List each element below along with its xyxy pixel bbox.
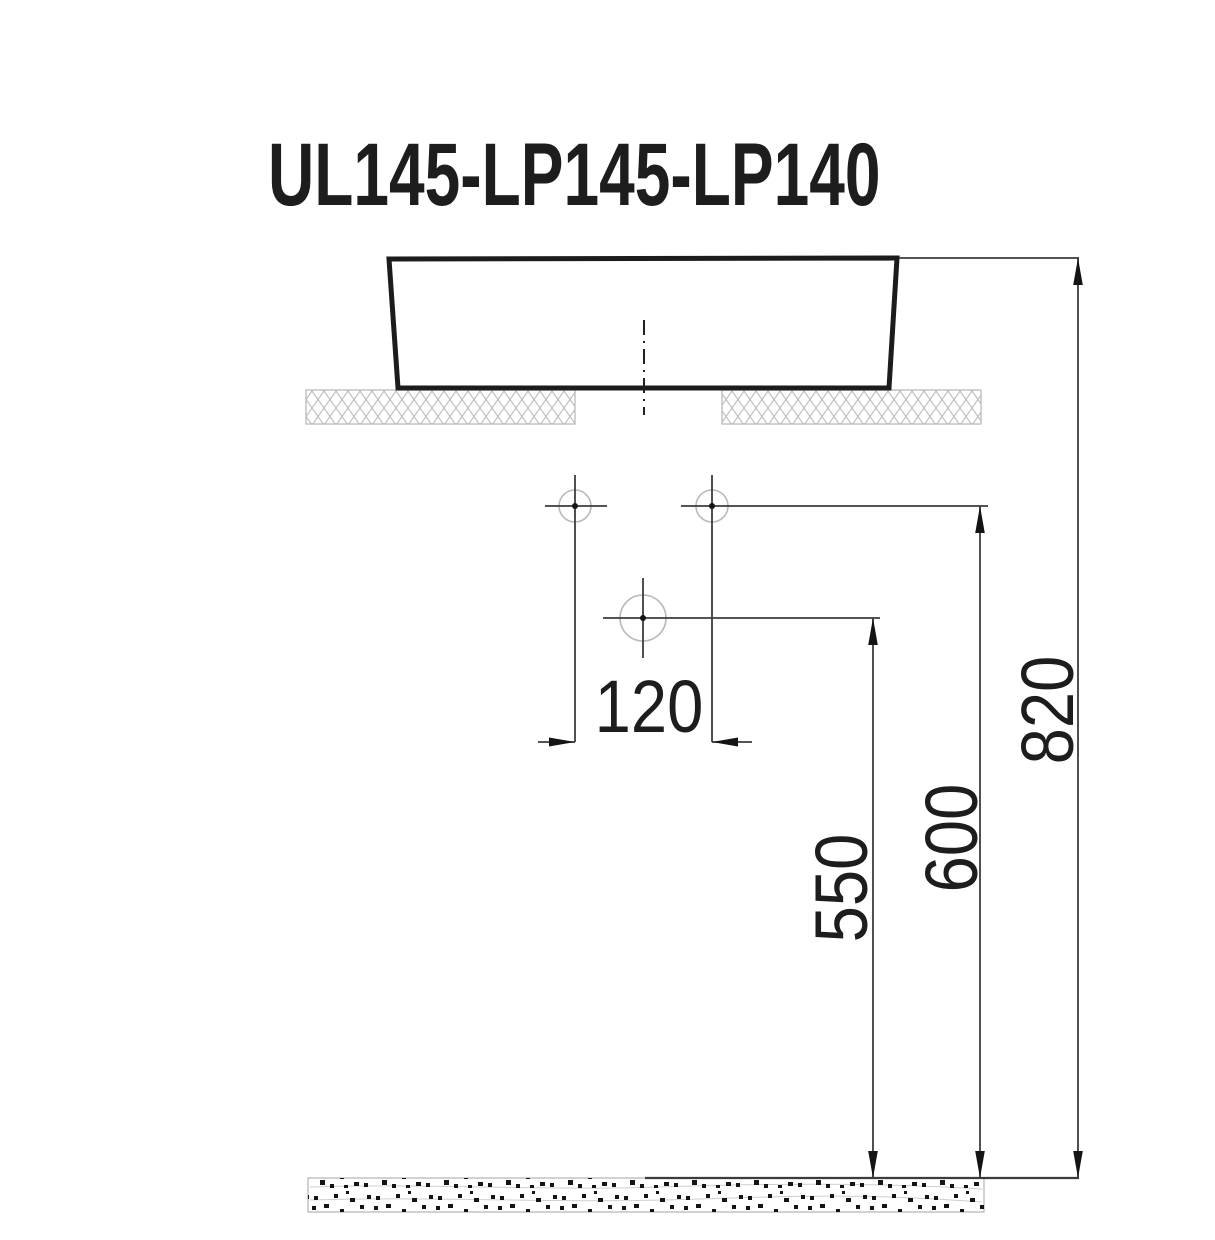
floor-speckle-fill xyxy=(308,1178,984,1212)
model-title: UL145-LP145-LP140 xyxy=(268,126,880,225)
floor-slab xyxy=(308,1178,1079,1212)
technical-drawing-canvas: UL145-LP145-LP140 xyxy=(0,0,1215,1240)
faucet-hole-right-center-dot xyxy=(709,503,715,509)
washbasin-dimension-drawing: UL145-LP145-LP140 xyxy=(0,0,1215,1240)
countertop-hatch-left xyxy=(306,390,575,424)
drain-outlet-center-dot xyxy=(640,615,646,621)
countertop-hatch-right xyxy=(722,390,981,424)
dim-value-600: 600 xyxy=(910,784,993,893)
faucet-hole-left-center-dot xyxy=(572,503,578,509)
dim-value-120: 120 xyxy=(595,665,704,748)
dim-value-820: 820 xyxy=(1006,656,1089,765)
dim-value-550: 550 xyxy=(800,834,883,943)
